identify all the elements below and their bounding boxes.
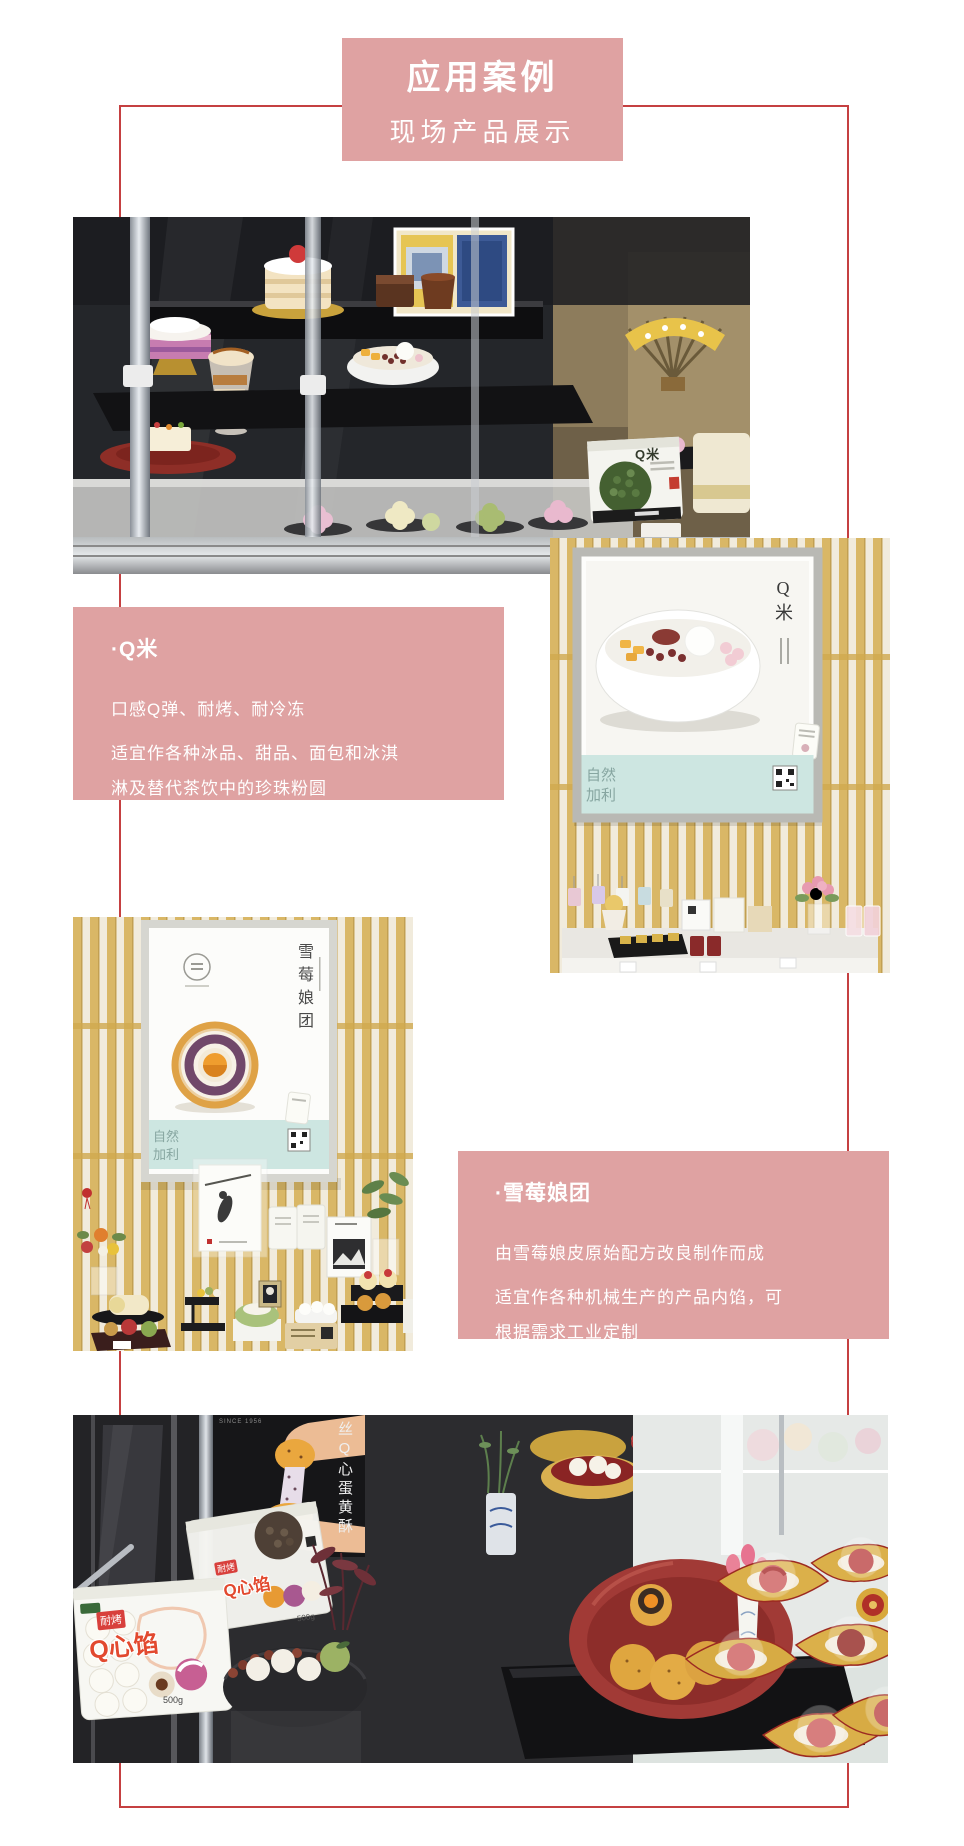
pearl-package-label: Q米 [635, 444, 660, 463]
photo-qmi-poster: Q米 自然 加利 [550, 538, 890, 973]
poster-title: Q米 [770, 578, 796, 626]
header-banner: 应用案例 现场产品展示 [342, 38, 623, 161]
qmi-poster-illustration [550, 538, 890, 973]
product-line: 淋及替代茶饮中的珍珠粉圆 [111, 774, 504, 799]
page-subtitle: 现场产品展示 [389, 112, 575, 149]
poster-brand: 自然 加利 [586, 766, 616, 807]
poster-title: 雪莓娘团 [291, 943, 315, 1035]
product-card-qmi: ·Q米 口感Q弹、耐烤、耐冷冻 适宜作各种冰品、甜品、面包和冰淇 淋及替代茶饮中… [73, 607, 504, 800]
product-line: 适宜作各种冰品、甜品、面包和冰淇 [111, 739, 504, 764]
package-weight-front: 500g [163, 1695, 183, 1705]
product-line: 口感Q弹、耐烤、耐冷冻 [111, 695, 504, 720]
product-card-xuemei: ·雪莓娘团 由雪莓娘皮原始配方改良制作而成 适宜作各种机械生产的产品内馅，可 根… [458, 1151, 889, 1339]
pastry-display-illustration [73, 1415, 888, 1763]
vertical-sign-text: 丝Q心蛋黄酥 [334, 1421, 355, 1537]
product-line: 根据需求工业定制 [495, 1318, 889, 1343]
promo-page: 应用案例 现场产品展示 [0, 0, 964, 1846]
product-line: 适宜作各种机械生产的产品内馅，可 [495, 1283, 889, 1308]
photo-display-case: Q米 [73, 217, 750, 574]
qr-code [773, 766, 797, 790]
package-name-front: Q心馅 [87, 1623, 160, 1666]
product-line: 由雪莓娘皮原始配方改良制作而成 [495, 1239, 889, 1264]
page-title: 应用案例 [407, 50, 559, 99]
since-label: SINCE 1956 [219, 1419, 262, 1425]
display-case-illustration [73, 217, 750, 574]
product-title: ·雪莓娘团 [495, 1177, 889, 1207]
poster-brand: 自然 加利 [153, 1128, 179, 1163]
photo-xuemei-poster: 雪莓娘团 自然 加利 [73, 917, 413, 1351]
photo-pastry-display: SINCE 1956 丝Q心蛋黄酥 耐烤 Q心馅 500g 耐烤 Q心馅 500… [73, 1415, 888, 1763]
xuemei-poster-illustration [73, 917, 413, 1351]
product-title: ·Q米 [111, 633, 504, 663]
qr-code [288, 1129, 310, 1151]
